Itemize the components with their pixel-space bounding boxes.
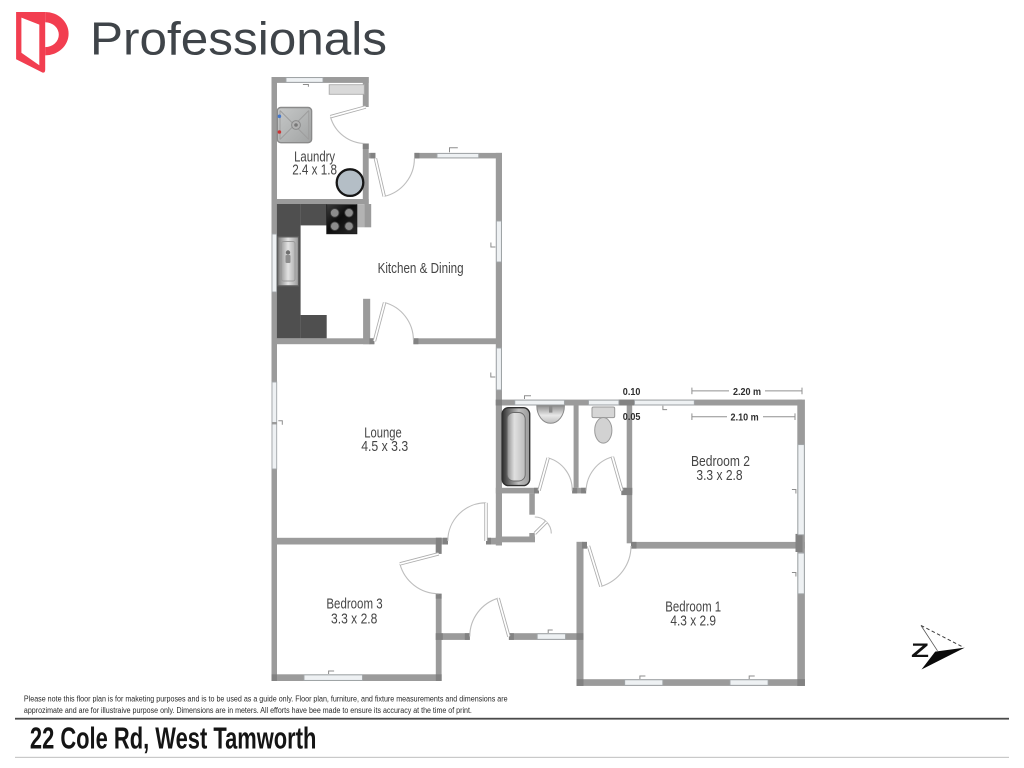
svg-text:Please note this floor plan is: Please note this floor plan is for maket… bbox=[24, 695, 508, 704]
svg-text:Kitchen & Dining: Kitchen & Dining bbox=[378, 261, 464, 277]
svg-text:22 Cole Rd, West Tamworth: 22 Cole Rd, West Tamworth bbox=[30, 721, 317, 756]
svg-text:4.5 x 3.3: 4.5 x 3.3 bbox=[361, 439, 408, 455]
svg-text:2.10 m: 2.10 m bbox=[731, 412, 759, 424]
svg-text:3.3 x 2.8: 3.3 x 2.8 bbox=[331, 611, 377, 627]
svg-text:Professionals: Professionals bbox=[90, 13, 387, 65]
svg-text:4.3 x 2.9: 4.3 x 2.9 bbox=[670, 614, 716, 630]
svg-text:Bedroom 3: Bedroom 3 bbox=[326, 597, 382, 613]
svg-text:approzimate and are for illust: approzimate and are for illustraive purp… bbox=[24, 706, 472, 715]
svg-text:2.4 x 1.8: 2.4 x 1.8 bbox=[292, 162, 337, 178]
svg-text:0.10: 0.10 bbox=[623, 386, 641, 398]
svg-text:2.20 m: 2.20 m bbox=[733, 386, 761, 398]
svg-text:3.3 x 2.8: 3.3 x 2.8 bbox=[696, 468, 742, 484]
svg-text:0.05: 0.05 bbox=[623, 411, 641, 423]
svg-text:Z: Z bbox=[911, 641, 930, 662]
